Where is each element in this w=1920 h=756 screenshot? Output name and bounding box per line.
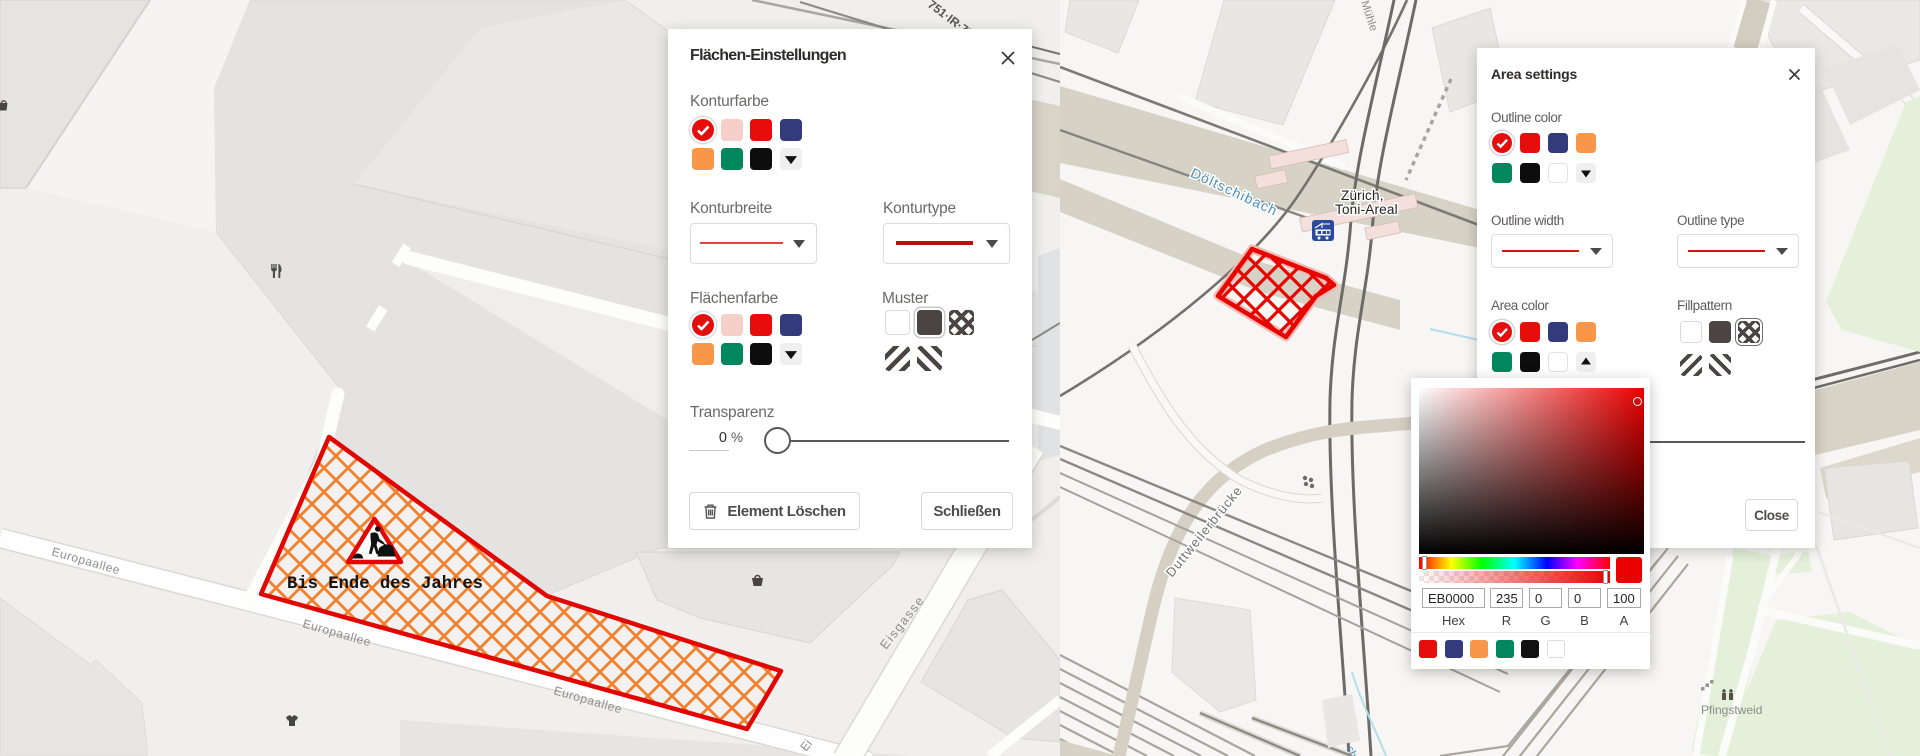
svg-text:Zürich,: Zürich, [1341, 188, 1384, 203]
svg-text:Pfingstweid: Pfingstweid [1701, 703, 1762, 717]
svg-text:Bis Ende des Jahres: Bis Ende des Jahres [287, 575, 483, 594]
svg-text:Toni-Areal: Toni-Areal [1335, 202, 1398, 217]
